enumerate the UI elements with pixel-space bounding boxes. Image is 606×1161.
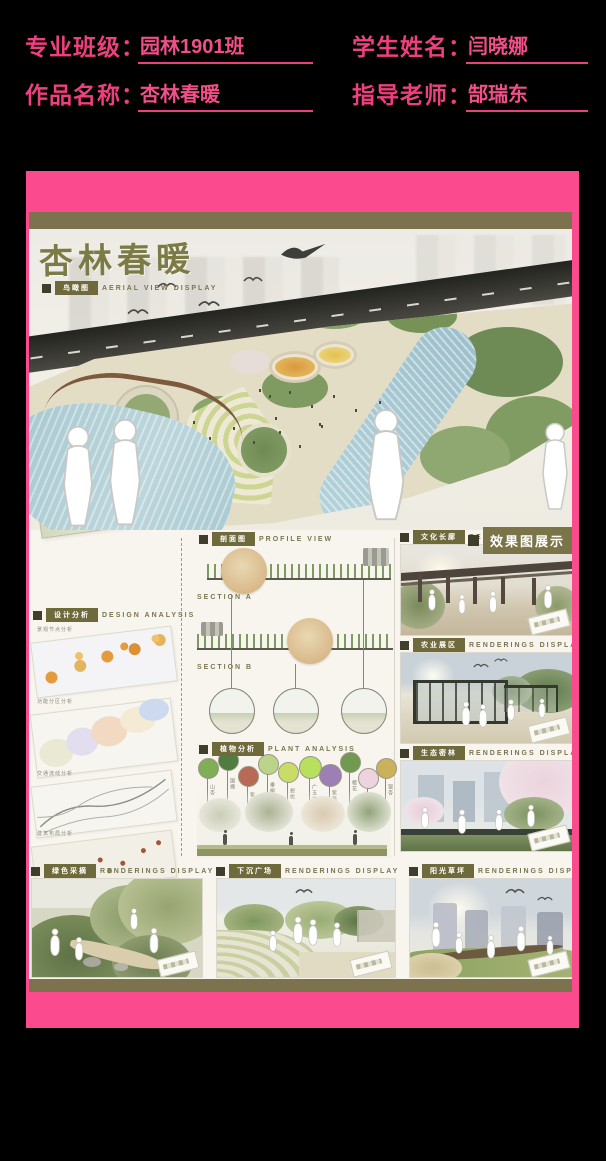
pergola-column (418, 575, 422, 602)
person-figure (422, 813, 428, 828)
person-figure (334, 929, 341, 946)
section-buildings (201, 622, 223, 636)
eco-forest-rendering (400, 760, 572, 852)
bird-icon (197, 299, 221, 308)
person-figure (131, 914, 137, 929)
diagram-caption: 功能分区分析 (37, 698, 73, 705)
forest-right (420, 426, 510, 486)
profile-tag: 剖面图 (212, 532, 255, 546)
square-bullet-icon (409, 867, 418, 876)
person-figure (76, 943, 83, 960)
teacher-label: 指导老师： (352, 76, 472, 110)
plant-sketch-scene (197, 790, 391, 858)
person-silhouette (537, 421, 572, 513)
building-block (357, 910, 395, 941)
sketch-person (223, 834, 227, 845)
glass-pavilion (413, 680, 508, 724)
person-figure (51, 936, 59, 956)
people-dots (259, 389, 261, 392)
pergola-column (446, 576, 450, 603)
profile-plant-column: 剖面图 PROFILE VIEW SECTION A SECTION B (195, 530, 395, 864)
plant-circle (319, 764, 342, 787)
rock (114, 963, 128, 971)
square-bullet-icon (400, 749, 409, 758)
plaza-tag: 下沉广场 (229, 864, 281, 878)
poster-board: 杏林春暖 鸟瞰图 AERIAL VIEW DISPLAY 设计分析 DESIGN… (26, 171, 579, 1028)
zoning-analysis-diagram (30, 698, 179, 779)
culture-corridor-rendering (400, 544, 572, 636)
square-bullet-icon (400, 641, 409, 650)
picking-tag: 绿色采摘 (44, 864, 96, 878)
sketch-tree (245, 792, 293, 832)
agriculture-tag: 农业展区 (413, 638, 465, 652)
amphitheater-center (241, 427, 287, 473)
person-silhouette (363, 401, 409, 530)
pergola-column (532, 578, 536, 605)
person-figure (545, 591, 552, 608)
person-figure (539, 704, 544, 718)
playground-oval (313, 341, 357, 369)
sketch-tree (301, 796, 345, 832)
aerial-label-row: 鸟瞰图 AERIAL VIEW DISPLAY (42, 281, 217, 295)
person-figure (429, 595, 435, 610)
person-silhouette (103, 417, 147, 529)
forest-tag: 生态密林 (413, 746, 465, 760)
node-dot (45, 671, 58, 684)
person-silhouette (57, 425, 99, 529)
sketch-tree (347, 792, 391, 832)
person-figure (517, 932, 524, 950)
person-figure (150, 934, 157, 952)
lawn-label-row: 阳光草坪 RENDERINGS DISPLAY (409, 864, 572, 878)
plan-thumbnail-card (527, 608, 570, 635)
square-bullet-icon (42, 284, 51, 293)
class-label: 专业班级： (25, 28, 145, 62)
person-figure (480, 710, 487, 727)
bird-icon (494, 657, 508, 663)
aerial-view-rendering: 杏林春暖 鸟瞰图 AERIAL VIEW DISPLAY (29, 229, 572, 530)
section-b-detail-circle (287, 618, 333, 664)
poster-content: 杏林春暖 鸟瞰图 AERIAL VIEW DISPLAY 设计分析 DESIGN… (29, 229, 572, 979)
leader-line (363, 580, 364, 688)
section-b-label: SECTION B (197, 664, 253, 671)
plant-name: 国槐 (229, 778, 236, 790)
student-value: 闫晓娜 (466, 30, 588, 64)
person-figure (496, 815, 502, 830)
circulation-analysis-diagram (30, 770, 177, 839)
poster-title: 杏林春暖 (39, 232, 196, 284)
renderings-column: 效果图展示 文化长廊 RENDERINGS DISPLAY (400, 530, 572, 864)
person-figure (270, 936, 276, 951)
plant-circle (238, 766, 259, 787)
person-figure (294, 924, 302, 944)
person-figure (432, 928, 439, 946)
corridor-tag: 文化长廊 (413, 530, 465, 544)
square-bullet-icon (400, 533, 409, 542)
teacher-value: 郜瑞东 (466, 78, 588, 112)
node-analysis-diagram (30, 626, 178, 699)
lawn-tag: 阳光草坪 (422, 864, 474, 878)
person-figure (488, 941, 495, 958)
diagram-caption: 景观节点分析 (37, 626, 73, 633)
plant-circle (198, 758, 219, 779)
aerial-tag-en: AERIAL VIEW DISPLAY (102, 285, 217, 292)
person-figure (547, 941, 552, 955)
square-bullet-icon (199, 745, 208, 754)
forest-label-row: 生态密林 RENDERINGS DISPLAY (400, 746, 572, 760)
person-figure (460, 600, 465, 614)
plan-thumbnail-card (527, 716, 570, 743)
design-tag-en: DESIGN ANALYSIS (102, 612, 195, 619)
forest-tag-en: RENDERINGS DISPLAY (469, 750, 572, 757)
bottom-renderings-row: 绿色采摘 RENDERINGS DISPLAY 下沉广场 (29, 864, 572, 979)
picking-tag-en: RENDERINGS DISPLAY (100, 868, 214, 875)
sketch-person (353, 834, 357, 845)
section-a-label: SECTION A (197, 594, 253, 601)
agriculture-label-row: 农业展区 RENDERINGS DISPLAY (400, 638, 572, 652)
analysis-band: 设计分析 DESIGN ANALYSIS 景观节点分析 功能分区分析 交通流线分… (29, 530, 572, 864)
detail-circle (341, 688, 387, 734)
plant-circle (258, 754, 279, 775)
plant-tag: 植物分析 (212, 742, 264, 756)
square-bullet-icon (31, 867, 40, 876)
person-figure (508, 705, 514, 720)
node-dot (75, 652, 84, 661)
person-figure (462, 708, 469, 725)
sunken-plaza-rendering (216, 878, 396, 978)
playground-sand (275, 357, 315, 377)
agriculture-pavilion-rendering (400, 652, 572, 744)
pergola-column (501, 577, 505, 604)
student-label: 学生姓名： (352, 28, 472, 62)
sunny-lawn-rendering (409, 878, 572, 978)
playground-sand (319, 347, 351, 363)
person-figure (490, 597, 496, 612)
diagram-caption: 交通流线分析 (37, 770, 73, 777)
plant-label-row: 植物分析 PLANT ANALYSIS (199, 742, 356, 756)
detail-circle (209, 688, 255, 734)
work-value: 杏林春暖 (138, 78, 313, 112)
person-figure (309, 926, 317, 945)
square-bullet-icon (199, 535, 208, 544)
person-figure (459, 816, 466, 833)
ground-strip (197, 849, 387, 856)
plant-tag-en: PLANT ANALYSIS (268, 746, 356, 753)
profile-label-row: 剖面图 PROFILE VIEW (199, 532, 333, 546)
bird-icon (295, 887, 313, 895)
profile-tag-en: PROFILE VIEW (259, 536, 333, 543)
plant-mass (400, 581, 445, 629)
bird-icon (281, 239, 327, 261)
renderings-badge-text: 效果图展示 (483, 527, 572, 554)
design-tag: 设计分析 (46, 608, 98, 622)
sketch-tree (199, 798, 241, 832)
square-bullet-icon (216, 867, 225, 876)
plant-circle (376, 758, 397, 779)
agriculture-tag-en: RENDERINGS DISPLAY (469, 642, 572, 649)
circulation-lines (31, 771, 176, 838)
section-a-detail-circle (221, 548, 267, 594)
plaza-label-row: 下沉广场 RENDERINGS DISPLAY (216, 864, 399, 878)
plant-circle (278, 762, 299, 783)
diagram-caption: 建筑布局分析 (37, 830, 73, 837)
bird-icon (537, 895, 553, 902)
design-label-row: 设计分析 DESIGN ANALYSIS (33, 608, 195, 622)
building-tower (465, 910, 488, 951)
green-picking-rendering (31, 878, 203, 978)
plaza-tag-en: RENDERINGS DISPLAY (285, 868, 399, 875)
bird-icon (127, 307, 149, 316)
leader-line (231, 594, 232, 688)
bird-icon (243, 275, 263, 283)
bird-icon (473, 662, 489, 669)
bird-icon (505, 887, 525, 895)
top-olive-band (29, 212, 572, 229)
design-analysis-column: 设计分析 DESIGN ANALYSIS 景观节点分析 功能分区分析 交通流线分… (29, 530, 181, 864)
bottom-olive-band (29, 979, 572, 992)
tree-mass (504, 797, 564, 831)
renderings-badge: 效果图展示 (468, 527, 572, 554)
pergola-column (473, 577, 477, 604)
class-value: 园林1901班 (138, 30, 313, 64)
leader-line (295, 664, 296, 688)
square-bullet-icon (468, 535, 479, 546)
lawn-tag-en: RENDERINGS DISPLAY (478, 868, 572, 875)
picking-label-row: 绿色采摘 RENDERINGS DISPLAY (31, 864, 214, 878)
person-figure (456, 938, 462, 953)
person-figure (528, 811, 534, 827)
blossom-cluster (230, 350, 270, 374)
section-buildings (363, 548, 389, 566)
dashed-divider (181, 538, 182, 856)
work-label: 作品名称： (25, 76, 145, 110)
aerial-tag: 鸟瞰图 (55, 281, 98, 295)
page-header: 专业班级： 园林1901班 学生姓名： 闫晓娜 作品名称： 杏林春暖 指导老师：… (0, 0, 606, 160)
square-bullet-icon (33, 611, 42, 620)
detail-circle (273, 688, 319, 734)
